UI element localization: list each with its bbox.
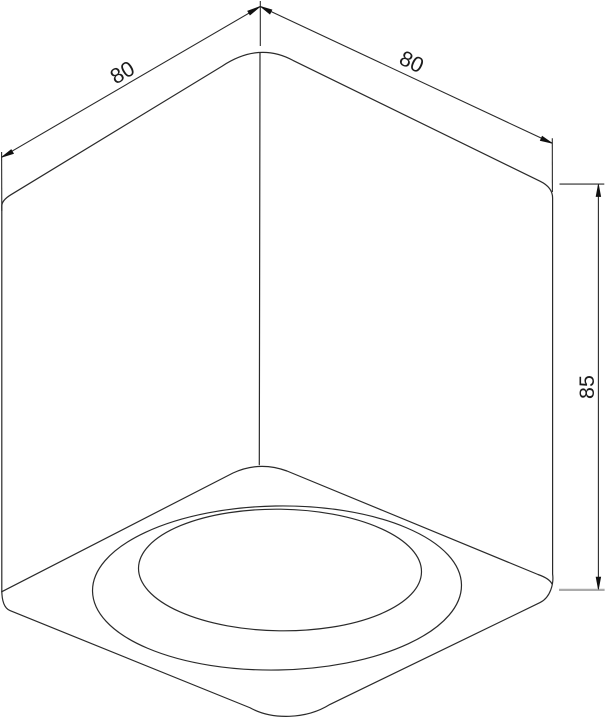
svg-text:80: 80 <box>396 46 428 78</box>
svg-text:80: 80 <box>106 56 139 89</box>
svg-text:85: 85 <box>575 375 599 399</box>
